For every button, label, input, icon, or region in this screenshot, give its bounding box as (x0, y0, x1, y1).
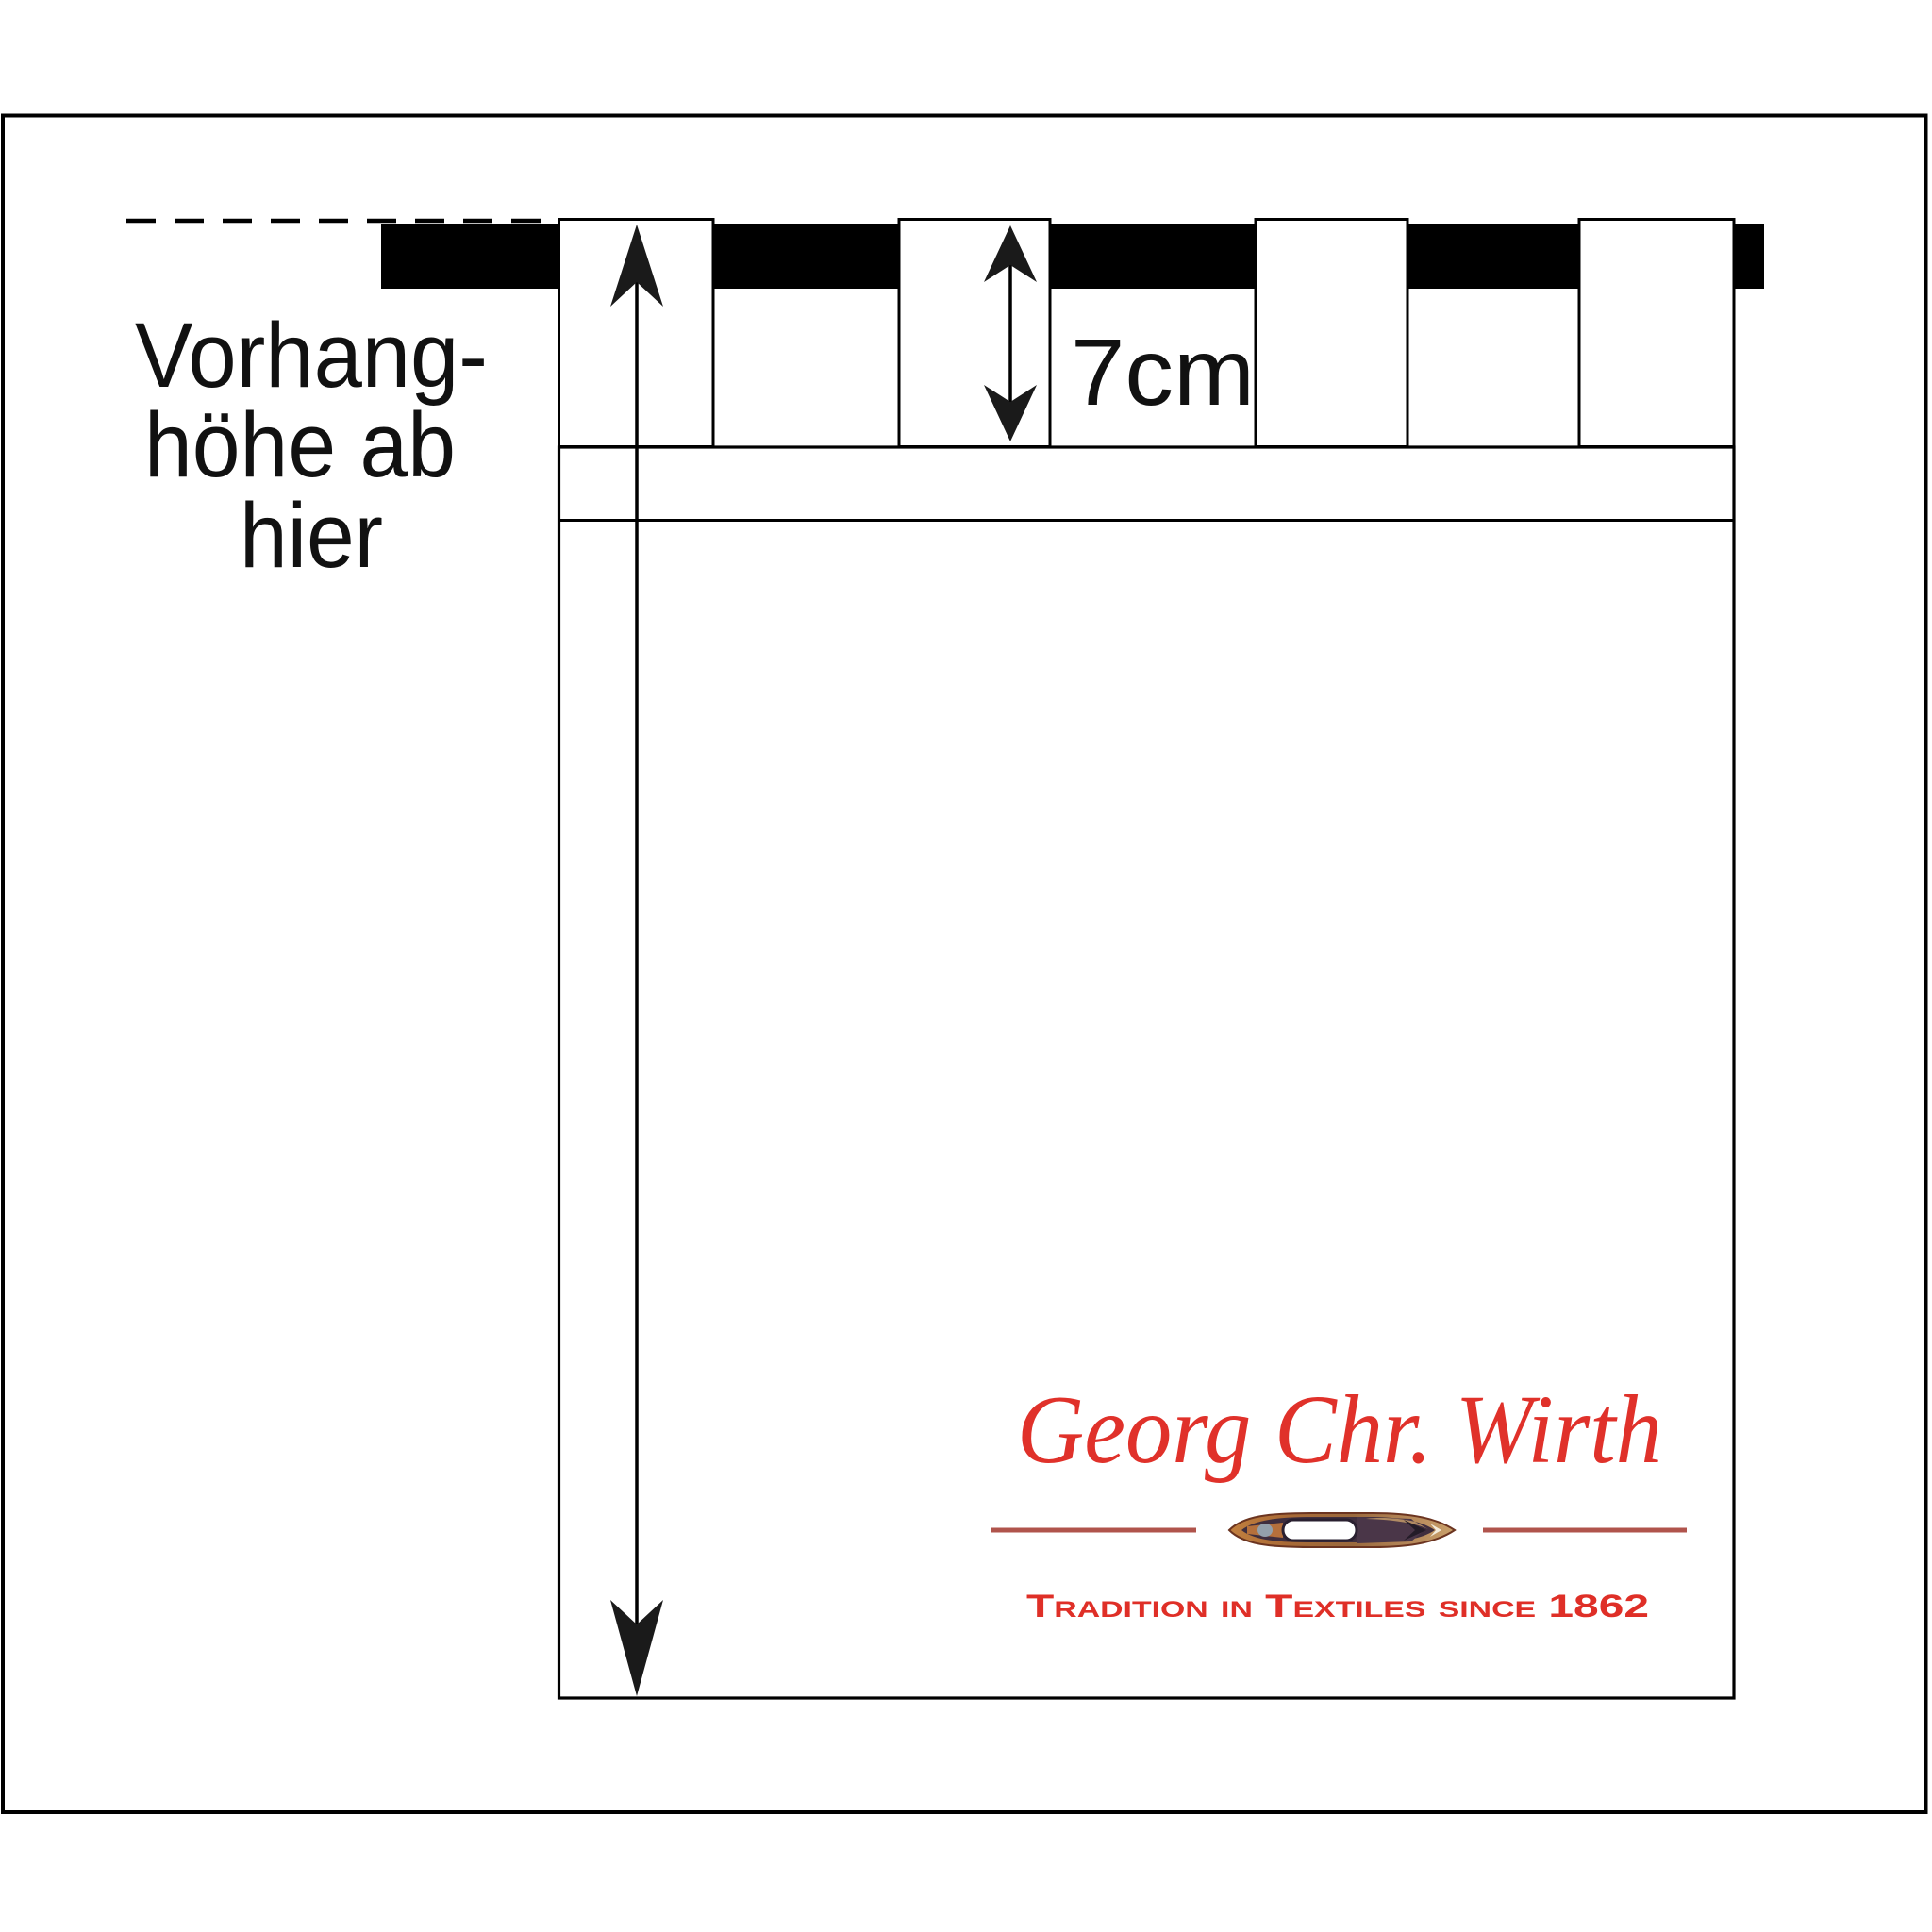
svg-text:7cm: 7cm (1071, 320, 1255, 425)
svg-text:hier: hier (240, 484, 383, 587)
svg-text:Georg Chr. Wirth: Georg Chr. Wirth (1017, 1375, 1662, 1484)
svg-text:Tradition in Textiles since 18: Tradition in Textiles since 1862 (1026, 1589, 1649, 1624)
svg-text:höhe ab: höhe ab (144, 393, 456, 496)
svg-text:Vorhang-: Vorhang- (135, 304, 488, 407)
